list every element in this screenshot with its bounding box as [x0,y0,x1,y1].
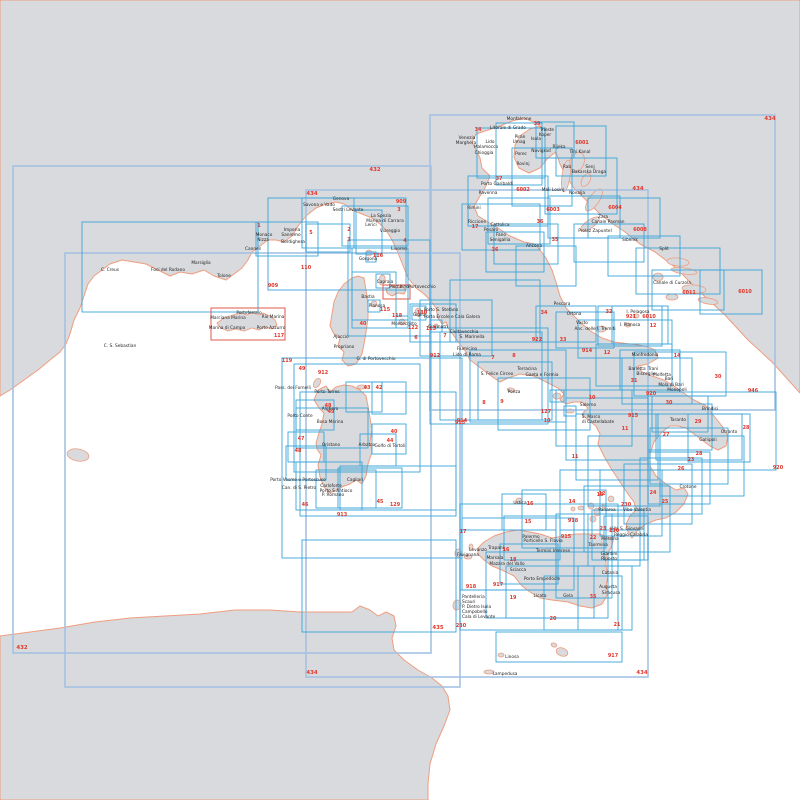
chart-number: 19 [510,595,517,601]
chart-number: 918 [568,518,579,524]
place-label: Marsiglia [191,260,211,266]
chart-number: 25 [662,499,669,505]
chart-number: 432 [369,167,381,173]
place-label: G. di Portovecchio [357,356,396,362]
chart-number: 40 [360,321,367,327]
chart-number: 36 [537,219,544,225]
place-label: Porec [515,151,527,157]
chart-number: 119 [282,358,293,364]
chart-number: 12 [650,323,657,329]
place-label: Bordighera [281,239,305,245]
chart-number: 11 [622,426,629,432]
place-label: Linosa [505,654,519,660]
chart-number: 230 [621,502,632,508]
place-label: Genova [333,196,350,202]
chart-number: 7 [491,355,495,361]
chart-number: 8 [512,353,516,359]
chart-number: 115 [380,307,391,313]
chart-number: 6008 [633,227,647,233]
chart-number: 23 [600,526,607,532]
chart-number: 6 [414,335,418,341]
place-label: Gaeta e Formia [526,372,559,378]
island [571,507,575,511]
chart-number: 10 [589,395,596,401]
chart-number: 32 [606,309,613,315]
chart-number: 130 [417,310,428,316]
chart-number: 39 [534,121,541,127]
place-label: Taormina [587,542,608,548]
place-label: Litorale di Grado [490,125,526,131]
place-label: Termini Imerese [535,548,571,554]
island [666,294,678,300]
place-label: Augusta [599,584,617,590]
place-label: Viareggio [380,228,401,234]
place-label: Favignana [457,552,479,558]
place-label: Umag [513,139,526,145]
chart-number: 42 [376,385,383,391]
place-label: Marsala [487,555,504,561]
place-label: Sciacca [510,567,527,573]
place-label: Foci del Rodano [151,267,185,273]
chart-number: 15 [525,519,532,525]
place-label: Propriano [334,344,355,350]
chart-number: 946 [748,388,759,394]
place-label: Rio Marina [262,314,285,320]
chart-number: 230 [456,623,467,629]
chart-number: 2 [347,227,350,233]
place-label: Rovinj [516,161,529,167]
place-label: Oristano [322,442,341,448]
chart-number: 6002 [516,187,530,193]
place-label: Canale Pasman [591,219,624,225]
chart-number: 123 [426,326,437,332]
chart-number: 918 [466,584,477,590]
chart-number: 909 [268,283,279,289]
chart-number: 914 [582,348,593,354]
chart-number: 117 [274,333,285,339]
place-label: Porto Ercole e Cala Galera [424,314,480,320]
place-label: Novigrad [531,148,551,154]
chart-number: 914 [457,418,468,424]
place-label: Lido di Roma [453,352,481,358]
chart-number: 432 [16,645,28,651]
chart-index-map: MarsigliaFoci del RodanoToloneC. CreusC.… [0,0,800,800]
chart-number: 29 [695,419,702,425]
place-label: Chioggia [475,150,494,156]
chart-number: 129 [390,502,401,508]
chart-number: 1 [257,223,261,229]
place-label: Lerici [365,222,376,228]
chart-number: 33 [560,337,567,343]
chart-number: 920 [646,391,657,397]
place-label: Portovecchio [408,284,436,290]
place-label: Vasto [576,320,588,326]
chart-number: 23 [688,457,695,463]
landmass [314,385,372,493]
place-label: Bari [665,376,674,382]
chart-number: 434 [632,186,644,192]
place-label: Ravenna [479,190,498,196]
place-label: Monfalcone [507,116,532,122]
place-label: Sibenik [622,237,638,243]
chart-number: 9 [500,399,504,405]
chart-number: 912 [430,353,440,359]
chart-number: 7 [443,333,447,339]
chart-number: 14 [569,499,576,505]
place-label: Ortona [567,311,582,317]
chart-number: 122 [408,325,418,331]
place-label: Terracina [516,366,537,372]
chart-number: 13 [597,492,604,498]
place-label: Tihi Kanal [569,149,591,155]
chart-number: 11 [572,454,579,460]
place-label: Piombino [389,284,409,290]
chart-number: 34 [475,127,482,133]
place-label: Marina di Campo [209,325,246,331]
place-label: Gela [563,593,573,599]
island [653,273,663,281]
chart-number: 12 [604,350,611,356]
place-label: C. S. Sebastian [104,343,137,349]
place-label: Bastia [361,294,375,300]
place-label: Porto Torres [314,389,340,395]
chart-number: 28 [696,451,703,457]
chart-number: 4 [403,238,407,244]
place-label: Crotone [680,484,697,490]
chart-number: 47 [298,436,305,442]
place-label: Can. di S. Pietro [282,485,317,491]
place-label: di Castellabate [582,419,615,425]
chart-number: 20 [550,616,557,622]
island [590,516,596,522]
chart-number: 913 [337,512,348,518]
place-label: Pescara [554,301,571,307]
island [608,496,614,502]
place-label: Porto Vesme e Portoscuso [270,477,326,483]
chart-number: 116 [373,253,384,259]
chart-number: 921 [626,314,637,320]
chart-number: 920 [773,465,784,471]
place-label: Pass. dei Fornelli [275,385,311,391]
chart-number: 5 [309,230,313,236]
chart-number: 35 [590,594,597,600]
chart-number: 434 [764,116,776,122]
chart-number: 922 [532,337,542,343]
chart-number: 22 [590,535,597,541]
place-label: Porto Conte [287,413,313,419]
chart-number: 3 [347,237,351,243]
chart-number: 30 [715,374,722,380]
chart-number: 6010 [738,289,752,295]
place-label: Catania [602,570,619,576]
chart-number: 118 [392,313,403,319]
place-label: Anc. delle I. Tremiti [574,326,615,332]
place-label: Nizza [257,237,269,243]
chart-number: 909 [396,199,407,205]
place-label: Cannes [245,246,262,252]
chart-number: 16 [527,501,534,507]
chart-number: 46 [302,502,309,508]
place-label: Riposto [601,556,617,562]
place-label: Sanremo [281,232,301,238]
chart-number: 435 [432,625,444,631]
place-label: Siracusa [602,590,621,596]
place-label: Monopoli [667,387,686,393]
chart-number: 127 [541,409,552,415]
chart-number: 35 [552,237,559,243]
chart-number: 40 [391,429,398,435]
place-label: Ustica [513,500,527,506]
place-label: Sestri Levante [333,207,364,213]
place-label: P. Romano [322,492,345,498]
place-label: Lampedusa [493,671,518,677]
chart-number: 14 [674,353,681,359]
place-label: Porto Empedocle [524,576,561,582]
place-label: Ponza [508,389,521,395]
chart-number: 917 [608,653,619,659]
place-label: Senigallia [490,237,511,243]
chart-number: 27 [663,432,670,438]
place-label: Livorno [391,246,407,252]
place-label: Isola [531,136,541,142]
place-label: Rimini [467,205,480,211]
place-label: Panarea [598,507,616,513]
island [578,506,584,510]
place-label: Ajaccio [333,334,349,340]
chart-number: 8 [482,400,486,406]
place-label: Brindisi [702,406,718,412]
chart-number: 30 [666,400,673,406]
place-label: Fiumicino [457,346,478,352]
chart-number: 44 [387,438,394,444]
chart-number: 28 [743,425,750,431]
place-label: Porto S. Stefano [424,307,459,313]
place-label: I. Pianosa [620,322,641,328]
landmass [0,606,450,800]
place-label: Licata [534,593,547,599]
chart-number: 915 [561,534,572,540]
place-label: Arbatax [359,442,376,448]
island [553,393,561,399]
place-label: Rijeka [552,144,565,150]
place-label: Reggio Calabria [614,532,648,538]
chart-number: 48 [295,448,302,454]
place-label: Mali Losinj [542,187,564,193]
place-label: Marciana Marina [210,315,246,321]
chart-number: 17 [460,529,467,535]
place-label: Bakarska Draga [572,169,606,175]
chart-index-page: MarsigliaFoci del RodanoToloneC. CreusC.… [0,0,800,800]
place-label: Salerno [580,402,597,408]
place-label: Savona e Vado [303,202,335,208]
place-label: Mazara del Vallo [489,561,525,567]
place-label: Trapani [487,545,504,551]
chart-number: 36 [492,247,499,253]
place-label: Taranto [669,417,686,423]
chart-number: 915 [628,413,639,419]
chart-number: 6011 [682,290,696,296]
chart-number: 43 [364,385,371,391]
place-label: S. Felice Circeo [481,371,514,377]
place-label: Cala di Levante [462,614,496,620]
place-label: Cagliari [347,477,363,483]
chart-number: 49 [328,409,335,415]
place-label: S. Marinella [459,334,485,340]
place-label: Novalja [569,190,585,196]
place-label: Manfredonia [632,352,659,358]
chart-number: 16 [503,547,510,553]
chart-number: 26 [678,466,685,472]
place-label: Rab [563,164,572,170]
place-label: Otranto [721,429,738,435]
place-label: Tolone [216,273,231,279]
chart-number: 31 [631,378,638,384]
chart-number: 434 [306,670,318,676]
place-label: Porto Azzurro [257,325,286,331]
chart-number: 434 [636,670,648,676]
chart-number: 10 [544,418,551,424]
chart-number: 110 [301,265,312,271]
place-label: Canale di Curzola [653,280,691,286]
chart-number: 37 [496,176,503,182]
place-label: Ancona [526,243,542,249]
chart-number: 6001 [575,140,589,146]
chart-number: 3 [397,207,401,213]
chart-number: 49 [299,366,306,372]
chart-number: 18 [510,557,517,563]
chart-number: 912 [318,370,328,376]
place-label: Bosa Marina [317,419,344,425]
chart-number: 6003 [546,207,560,213]
chart-number: 21 [614,622,621,628]
place-label: Porticello S. Flavia [523,538,563,544]
chart-number: 17 [472,224,479,230]
chart-number: 34 [541,310,548,316]
place-label: Split [659,246,669,252]
chart-number: 6010 [642,314,656,320]
chart-number: 45 [377,499,384,505]
chart-number: 917 [493,582,504,588]
island [498,653,504,657]
place-label: Prolaz Zapuntel [578,228,612,234]
place-label: C. Creus [101,267,120,273]
place-label: Gallipoli [699,437,716,443]
chart-number: 130 [609,528,620,534]
chart-number: 24 [650,490,657,496]
chart-number: 6004 [608,205,622,211]
place-label: Malamocco [474,144,499,150]
chart-number: 434 [306,191,318,197]
